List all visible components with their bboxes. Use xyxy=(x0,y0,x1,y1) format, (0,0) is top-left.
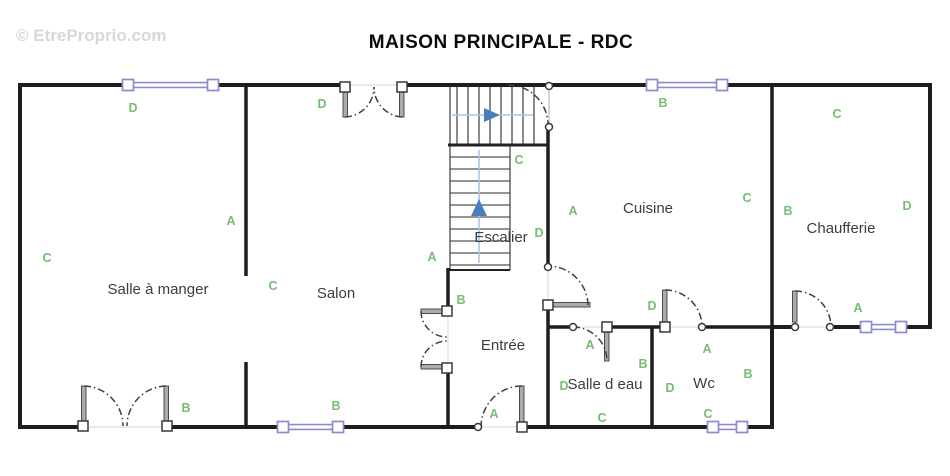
door-jamb-pivot xyxy=(546,124,553,131)
wall-letter: D xyxy=(317,97,326,111)
door-jamb-pivot xyxy=(546,83,553,90)
door-jamb-pivot xyxy=(827,324,834,331)
wall-letter: B xyxy=(658,96,667,110)
door-living-double-top xyxy=(340,82,407,117)
door-swing-arc xyxy=(548,266,588,305)
door-jamb-pivot xyxy=(792,324,799,331)
door-swing-arc xyxy=(127,386,166,426)
room-label-hall: Entrée xyxy=(481,337,525,354)
wall-letter: A xyxy=(489,407,498,421)
door-hinge xyxy=(442,306,452,316)
wall-letter: B xyxy=(331,399,340,413)
door-hinge xyxy=(340,82,350,92)
window-jamb xyxy=(896,322,907,333)
wall-letter: D xyxy=(902,199,911,213)
wall-letter: D xyxy=(534,226,543,240)
door-hinge xyxy=(517,422,527,432)
door-leaf xyxy=(343,92,348,117)
wall-letter: C xyxy=(703,407,712,421)
wall-letter: D xyxy=(559,379,568,393)
wall-letter: B xyxy=(456,293,465,307)
wall-letter: D xyxy=(665,381,674,395)
room-label-wc: Wc xyxy=(693,375,715,392)
door-swing-arc xyxy=(508,85,548,125)
window-jamb xyxy=(737,422,748,433)
window-jamb xyxy=(123,80,134,91)
window-dining-top xyxy=(123,80,219,91)
wall-letter: B xyxy=(638,357,647,371)
wall-letter: A xyxy=(427,250,436,264)
window-jamb xyxy=(861,322,872,333)
door-swing-arc xyxy=(84,386,123,426)
door-swing-arc xyxy=(795,291,831,327)
wall-letter: A xyxy=(585,338,594,352)
window-jamb xyxy=(647,80,658,91)
wall-letter: D xyxy=(647,299,656,313)
floor-plan-drawing: © EtreProprio.com MAISON PRINCIPALE - RD… xyxy=(0,0,950,476)
door-hinge xyxy=(397,82,407,92)
window-jamb xyxy=(717,80,728,91)
door-swing-arc xyxy=(481,386,522,427)
window-jamb xyxy=(278,422,289,433)
wall-letter: C xyxy=(742,191,751,205)
window-kitchen-top xyxy=(647,80,728,91)
door-jamb-pivot xyxy=(475,424,482,431)
door-jamb-pivot xyxy=(570,324,577,331)
watermark: © EtreProprio.com xyxy=(16,26,166,45)
door-stair-kitchen xyxy=(508,83,553,131)
wall-letter: D xyxy=(128,101,137,115)
wall-letter: B xyxy=(743,367,752,381)
wall-letter: C xyxy=(514,153,523,167)
stair-arrow-right-icon xyxy=(484,108,500,122)
door-entrance-front xyxy=(475,386,528,432)
wall-letter: A xyxy=(853,301,862,315)
door-jamb-pivot xyxy=(699,324,706,331)
window-wc-bottom xyxy=(708,422,748,433)
door-wc xyxy=(660,290,706,332)
door-hinge xyxy=(162,421,172,431)
door-leaf xyxy=(520,386,525,422)
wall-letter: B xyxy=(181,401,190,415)
door-hinge xyxy=(660,322,670,332)
room-label-shower: Salle d eau xyxy=(567,376,642,393)
walls xyxy=(18,83,932,429)
door-thresholds xyxy=(84,85,828,427)
wall-letter: C xyxy=(268,279,277,293)
door-hinge xyxy=(78,421,88,431)
exterior-wall xyxy=(18,83,932,429)
door-leaf xyxy=(400,92,405,117)
room-label-stairs: Escalier xyxy=(474,229,527,246)
door-jamb-pivot xyxy=(545,264,552,271)
room-label-kitchen: Cuisine xyxy=(623,200,673,217)
wall-letter: A xyxy=(226,214,235,228)
door-dining-double xyxy=(78,386,172,431)
room-labels: Salle à manger Salon Escalier Entrée Cui… xyxy=(108,200,876,393)
door-leaf xyxy=(793,291,798,322)
stair-arrow-up-icon xyxy=(471,199,487,216)
wall-letter: C xyxy=(597,411,606,425)
door-hinge xyxy=(442,363,452,373)
door-leaf xyxy=(82,386,87,421)
door-leaf xyxy=(164,386,169,421)
floor-plan-page: © EtreProprio.com MAISON PRINCIPALE - RD… xyxy=(0,0,950,476)
door-leaf xyxy=(552,303,590,308)
window-boiler-bottom xyxy=(861,322,907,333)
door-hinge xyxy=(543,300,553,310)
page-title: MAISON PRINCIPALE - RDC xyxy=(369,32,633,53)
door-living-hall-double xyxy=(421,306,452,373)
room-label-dining: Salle à manger xyxy=(108,281,209,298)
wall-letter: C xyxy=(832,107,841,121)
door-kitchen-hall xyxy=(543,264,590,311)
room-label-boiler: Chaufferie xyxy=(807,220,876,237)
window-jamb xyxy=(708,422,719,433)
window-living-bottom xyxy=(278,422,344,433)
wall-letter: A xyxy=(702,342,711,356)
wall-letter: B xyxy=(783,204,792,218)
room-label-living: Salon xyxy=(317,285,355,302)
door-boiler-exterior xyxy=(792,291,834,331)
window-jamb xyxy=(333,422,344,433)
wall-letter: C xyxy=(42,251,51,265)
wall-letter: A xyxy=(568,204,577,218)
door-leaf xyxy=(663,290,668,322)
window-jamb xyxy=(208,80,219,91)
door-hinge xyxy=(602,322,612,332)
